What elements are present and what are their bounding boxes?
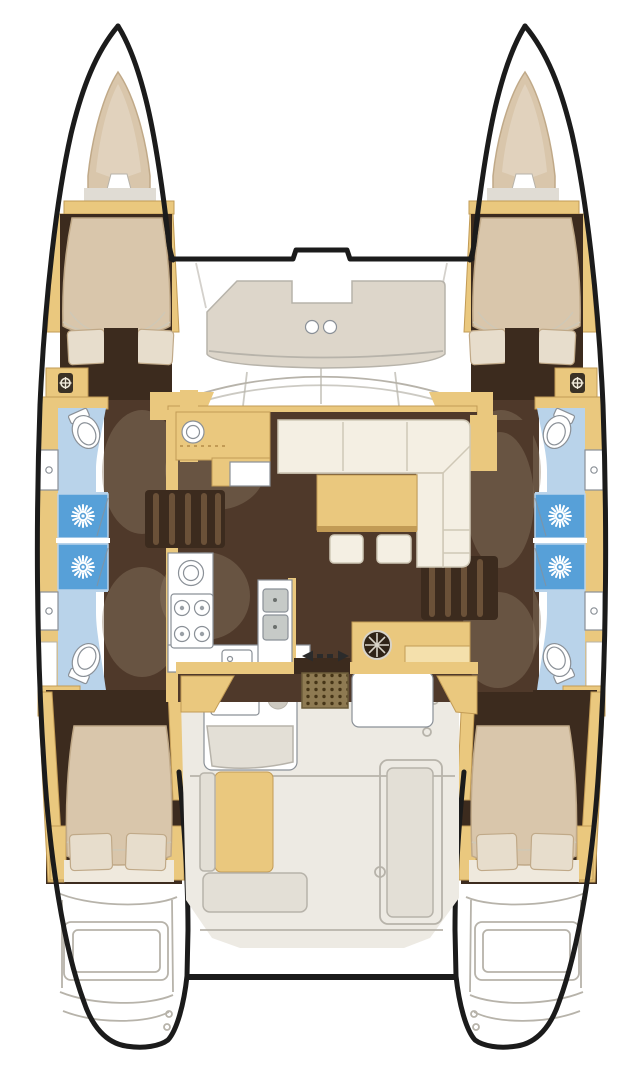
catamaran-floorplan: [0, 0, 643, 1080]
stove-burner-icon: [171, 594, 213, 648]
ottoman: [377, 535, 411, 563]
stairs-to-port-hull: [145, 490, 225, 548]
ottoman: [330, 535, 363, 563]
floorplan-svg: [0, 0, 643, 1080]
cup-holder: [306, 321, 319, 334]
aft-crossbeam: [186, 974, 457, 980]
cockpit-bench: [387, 768, 433, 917]
cockpit-table: [215, 772, 273, 872]
cockpit-bench: [200, 773, 215, 871]
salon-wall: [470, 415, 497, 471]
salon-table: [317, 475, 417, 530]
companionway-grate-icon: [302, 673, 348, 708]
nav-seat: [352, 672, 433, 727]
forward-crossbeam: [171, 250, 472, 259]
salon: [145, 390, 536, 727]
cockpit-bench: [203, 873, 307, 912]
cup-holder: [324, 321, 337, 334]
foredeck-lounge: [196, 263, 447, 368]
sink-icon: [179, 561, 204, 586]
sink-icon: [182, 421, 204, 443]
